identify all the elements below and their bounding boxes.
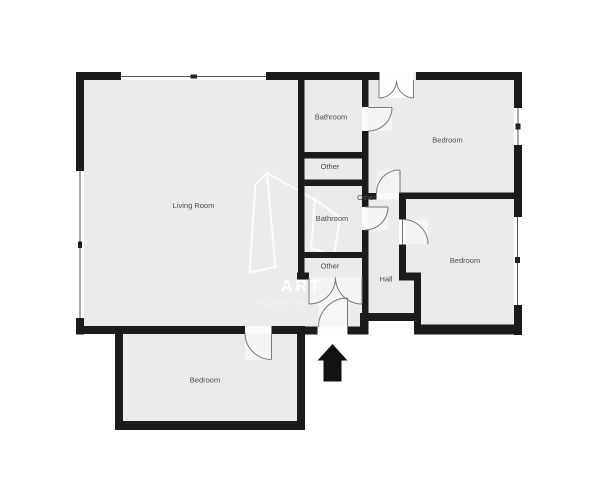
svg-text:Bedroom: Bedroom (432, 136, 462, 145)
svg-text:Bathroom: Bathroom (315, 113, 348, 122)
svg-text:ART: ART (281, 278, 322, 296)
svg-text:Bedroom: Bedroom (190, 376, 220, 385)
svg-text:Other: Other (321, 262, 340, 271)
svg-text:Bedroom: Bedroom (450, 256, 480, 265)
svg-text:НЕДВИЖИМОСТЬ: НЕДВИЖИМОСТЬ (257, 302, 324, 308)
svg-text:Hall: Hall (380, 275, 393, 284)
svg-text:Bathroom: Bathroom (316, 214, 349, 223)
svg-text:Other: Other (357, 193, 376, 202)
svg-text:Other: Other (321, 162, 340, 171)
svg-text:Living Room: Living Room (173, 201, 215, 210)
